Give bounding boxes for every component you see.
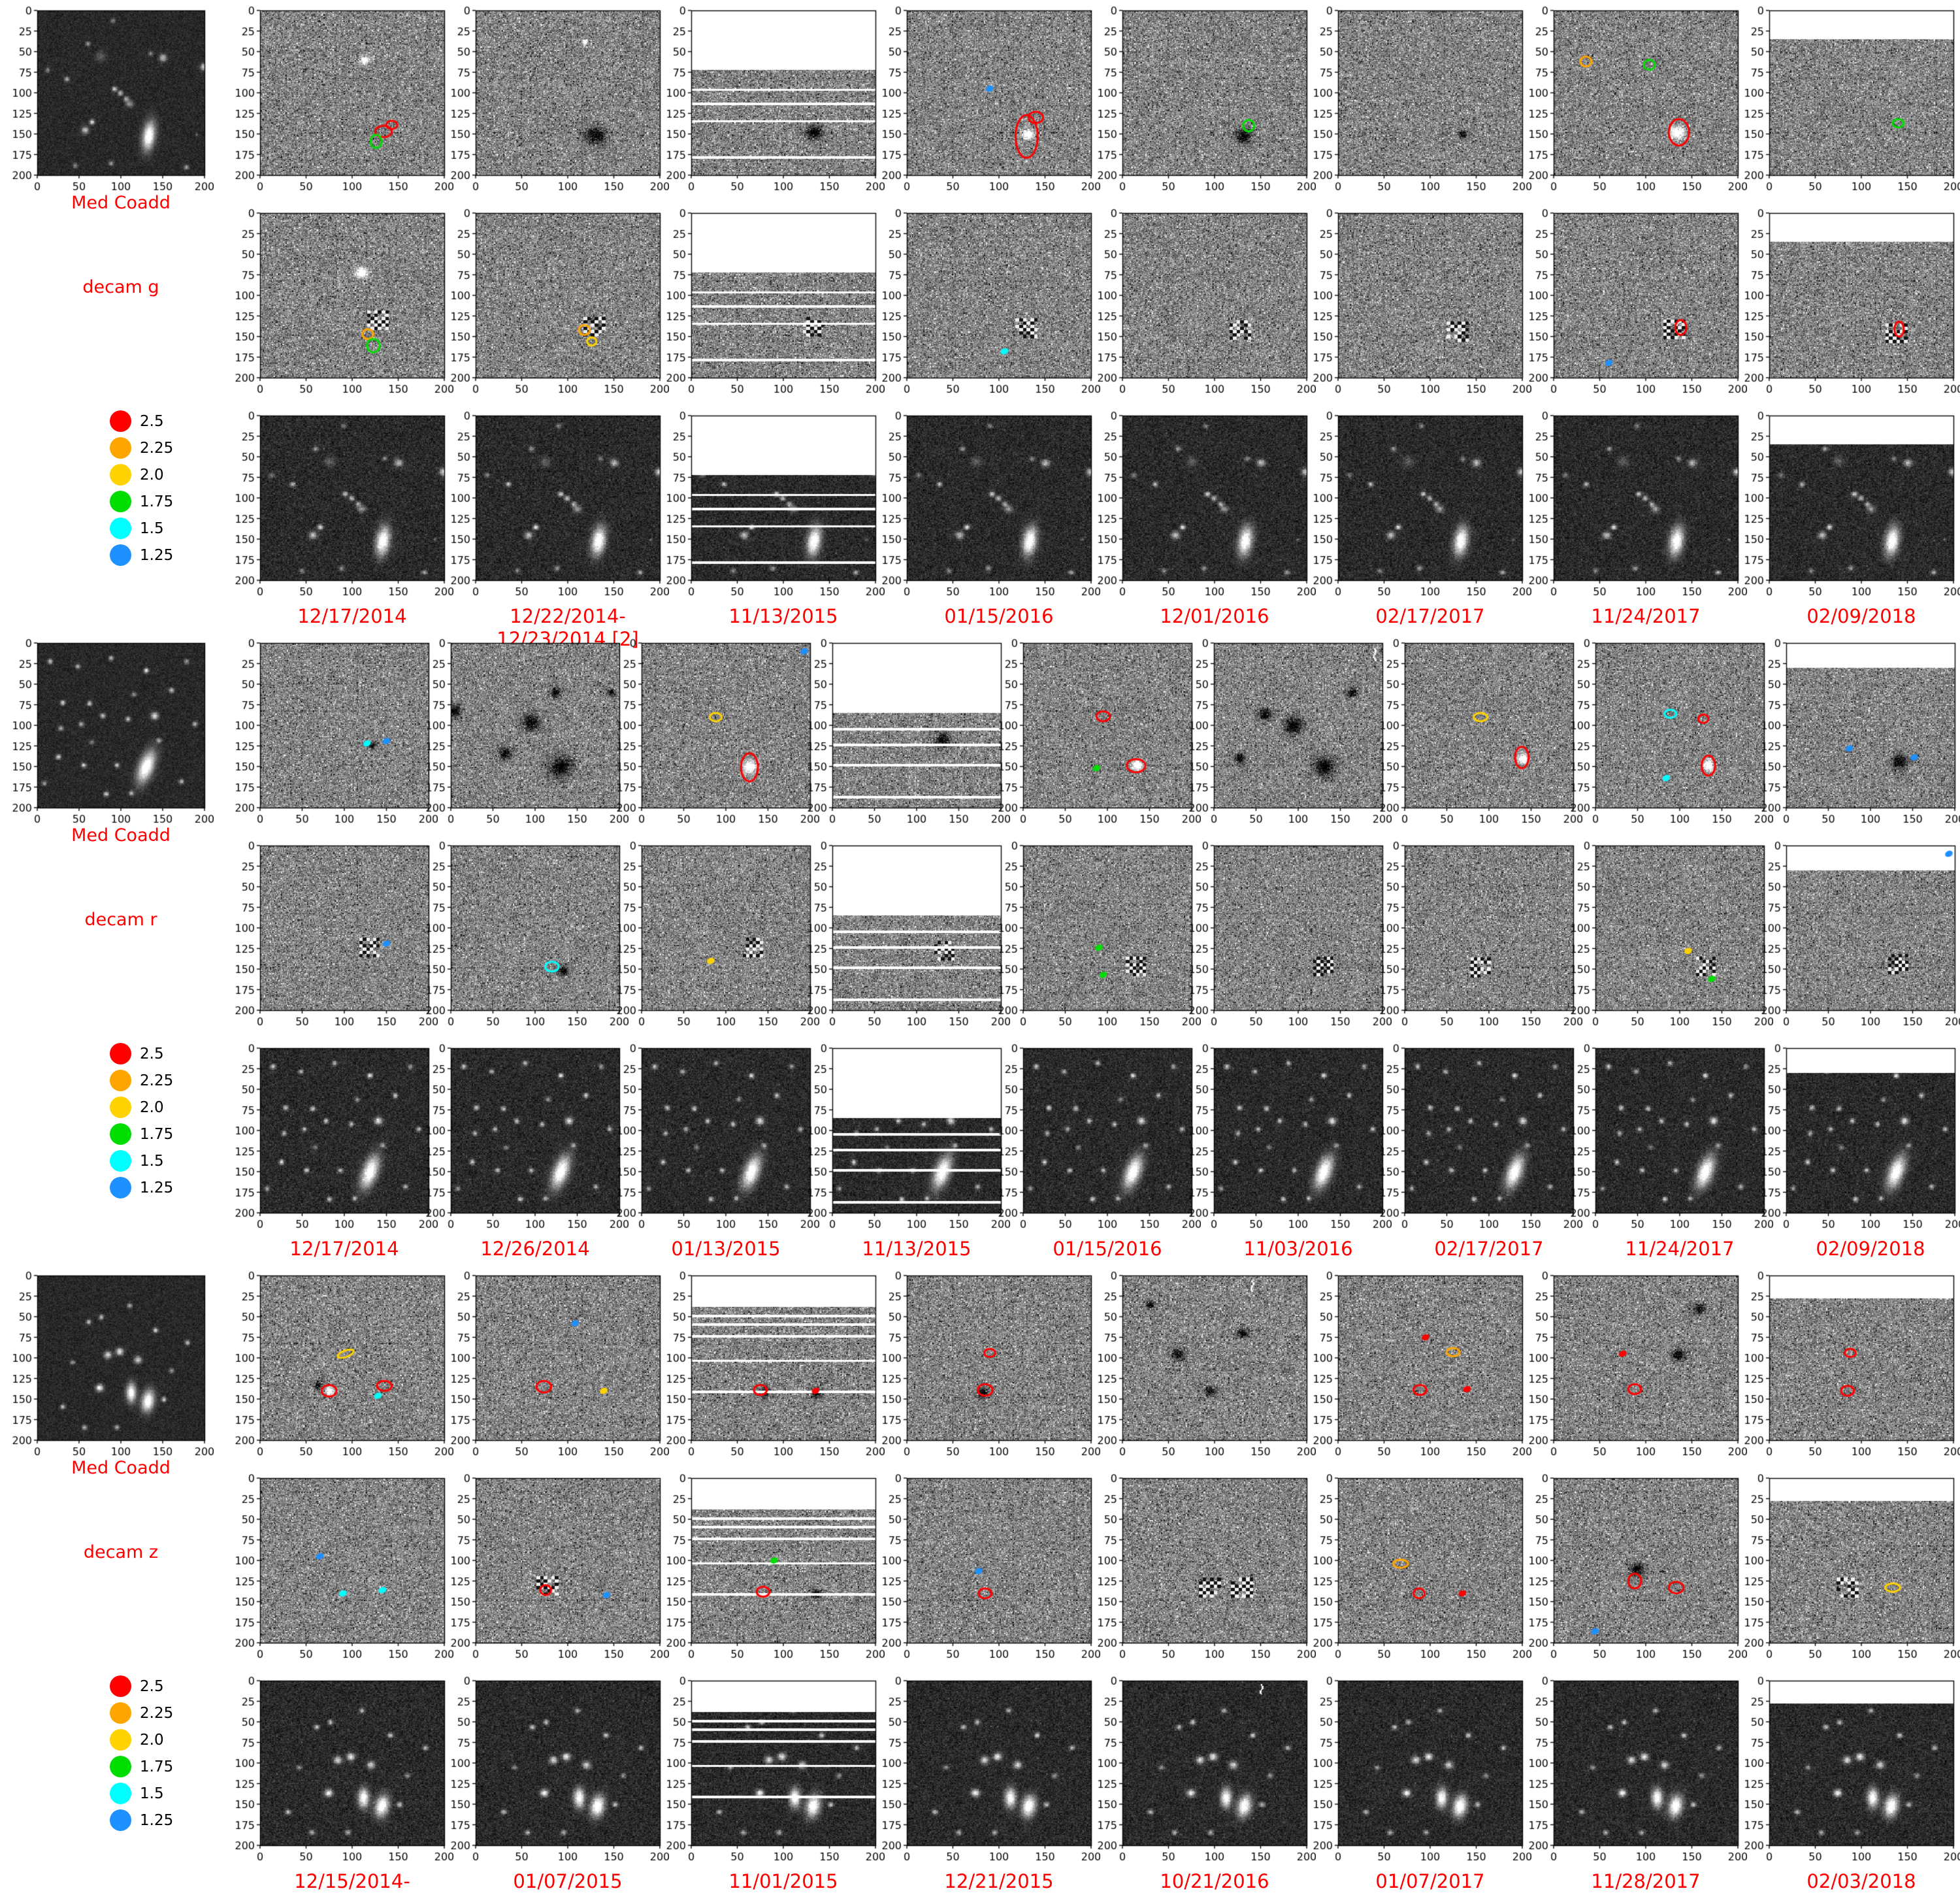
legend-value: 1.25 [140, 1812, 173, 1829]
panel-decam-g-row3-col1 [234, 408, 453, 600]
legend-entry: 1.5 [110, 515, 173, 542]
band-group-decam-r: Med Coadd decam r 2.52.252.01.751.51.25 … [0, 633, 1960, 1265]
panel-decam-z-row1-col8 [1743, 1268, 1960, 1460]
legend-dot-icon [110, 1702, 131, 1724]
band-group-decam-z: Med Coadd decam z 2.52.252.01.751.51.25 … [0, 1265, 1960, 1895]
panel-decam-g-row1-col7 [1527, 3, 1747, 195]
band-label-r: decam r [13, 910, 229, 930]
legend-dot-icon [110, 464, 131, 486]
panel-decam-g-row1-col1 [234, 3, 453, 195]
figure-root: Med Coadd decam g 2.52.252.01.751.51.25 … [0, 0, 1960, 1895]
panel-decam-r-row1-col4 [806, 635, 1010, 827]
panel-decam-g-row3-col4 [881, 408, 1100, 600]
med-coadd-panel-r [11, 635, 214, 827]
legend-dot-icon [110, 1783, 131, 1804]
panel-decam-g-row3-col6 [1312, 408, 1531, 600]
panel-decam-r-row2-col9 [1760, 838, 1960, 1030]
legend-dot-icon [110, 1756, 131, 1777]
panel-decam-r-row1-col3 [615, 635, 819, 827]
legend-value: 1.75 [140, 1126, 173, 1143]
panel-decam-g-row3-col5 [1096, 408, 1316, 600]
legend-value: 2.0 [140, 467, 164, 484]
panel-decam-z-row1-col7 [1527, 1268, 1747, 1460]
panel-decam-z-row3-col3 [665, 1673, 885, 1865]
panel-decam-z-row2-col1 [234, 1470, 453, 1662]
legend-value: 1.75 [140, 1758, 173, 1775]
panel-decam-r-row2-col8 [1569, 838, 1773, 1030]
legend-entry: 1.75 [110, 1121, 173, 1147]
panel-decam-g-row3-col8 [1743, 408, 1960, 600]
panel-decam-g-row2-col2 [449, 205, 669, 397]
panel-decam-z-row2-col6 [1312, 1470, 1531, 1662]
legend-dot-icon [110, 1729, 131, 1751]
legend-value: 1.25 [140, 1179, 173, 1196]
legend-dot-icon [110, 1809, 131, 1831]
legend-dot-icon [110, 410, 131, 432]
confidence-legend: 2.52.252.01.751.51.25 [110, 1673, 173, 1834]
epoch-date-label: 02/09/2018 [1724, 605, 1960, 628]
legend-entry: 2.0 [110, 1094, 173, 1121]
legend-entry: 2.25 [110, 435, 173, 461]
panel-decam-g-row2-col5 [1096, 205, 1316, 397]
panel-decam-z-row2-col5 [1096, 1470, 1316, 1662]
panel-decam-r-row3-col5 [997, 1040, 1201, 1232]
panel-decam-z-row1-col3 [665, 1268, 885, 1460]
legend-dot-icon [110, 1123, 131, 1145]
panel-decam-z-row2-col8 [1743, 1470, 1960, 1662]
med-coadd-label: Med Coadd [24, 193, 218, 213]
legend-value: 1.5 [140, 1785, 164, 1802]
panel-decam-r-row1-col5 [997, 635, 1201, 827]
legend-entry: 2.0 [110, 461, 173, 488]
legend-entry: 1.25 [110, 1174, 173, 1201]
panel-decam-z-row2-col3 [665, 1470, 885, 1662]
panel-decam-g-row1-col8 [1743, 3, 1960, 195]
legend-entry: 2.5 [110, 1040, 173, 1067]
band-label-z: decam z [13, 1542, 229, 1562]
panel-decam-z-row2-col4 [881, 1470, 1100, 1662]
panel-decam-z-row1-col2 [449, 1268, 669, 1460]
panel-decam-r-row3-col6 [1188, 1040, 1392, 1232]
panel-decam-z-row3-col5 [1096, 1673, 1316, 1865]
confidence-legend: 2.52.252.01.751.51.25 [110, 408, 173, 568]
panel-decam-r-row3-col2 [425, 1040, 629, 1232]
legend-entry: 1.25 [110, 1807, 173, 1834]
panel-decam-r-row1-col9 [1760, 635, 1960, 827]
band-group-decam-g: Med Coadd decam g 2.52.252.01.751.51.25 … [0, 0, 1960, 633]
panel-decam-g-row2-col7 [1527, 205, 1747, 397]
legend-dot-icon [110, 544, 131, 566]
panel-decam-g-row1-col4 [881, 3, 1100, 195]
panel-decam-g-row1-col6 [1312, 3, 1531, 195]
panel-decam-r-row2-col1 [234, 838, 438, 1030]
legend-value: 2.5 [140, 1678, 164, 1695]
panel-decam-r-row3-col1 [234, 1040, 438, 1232]
panel-decam-r-row2-col7 [1379, 838, 1582, 1030]
panel-decam-r-row3-col8 [1569, 1040, 1773, 1232]
legend-value: 1.5 [140, 520, 164, 537]
legend-entry: 2.25 [110, 1700, 173, 1726]
legend-entry: 2.5 [110, 408, 173, 435]
panel-decam-z-row1-col6 [1312, 1268, 1531, 1460]
legend-dot-icon [110, 1675, 131, 1697]
legend-value: 1.25 [140, 547, 173, 564]
panel-decam-r-row3-col3 [615, 1040, 819, 1232]
legend-entry: 2.25 [110, 1067, 173, 1094]
panel-decam-g-row2-col8 [1743, 205, 1960, 397]
epoch-date-label: 02/09/2018 [1733, 1238, 1960, 1261]
panel-decam-r-row2-col5 [997, 838, 1201, 1030]
panel-decam-z-row3-col8 [1743, 1673, 1960, 1865]
panel-decam-r-row1-col6 [1188, 635, 1392, 827]
legend-entry: 1.5 [110, 1147, 173, 1174]
med-coadd-panel-g [11, 3, 214, 195]
legend-entry: 2.5 [110, 1673, 173, 1700]
panel-decam-g-row1-col3 [665, 3, 885, 195]
legend-dot-icon [110, 1096, 131, 1118]
legend-value: 2.0 [140, 1732, 164, 1749]
panel-decam-r-row2-col3 [615, 838, 819, 1030]
panel-decam-g-row2-col6 [1312, 205, 1531, 397]
legend-dot-icon [110, 437, 131, 459]
med-coadd-label: Med Coadd [24, 1458, 218, 1478]
panel-decam-z-row3-col4 [881, 1673, 1100, 1865]
panel-decam-r-row1-col1 [234, 635, 438, 827]
legend-value: 2.5 [140, 1046, 164, 1063]
panel-decam-r-row2-col2 [425, 838, 629, 1030]
panel-decam-g-row1-col2 [449, 3, 669, 195]
legend-dot-icon [110, 1150, 131, 1172]
legend-dot-icon [110, 518, 131, 539]
legend-value: 1.5 [140, 1153, 164, 1170]
legend-value: 2.5 [140, 413, 164, 430]
panel-decam-g-row3-col2 [449, 408, 669, 600]
panel-decam-r-row3-col4 [806, 1040, 1010, 1232]
legend-dot-icon [110, 1177, 131, 1198]
epoch-date-label: 02/03/2018 [1724, 1870, 1960, 1893]
panel-decam-r-row2-col6 [1188, 838, 1392, 1030]
legend-entry: 1.75 [110, 488, 173, 515]
confidence-legend: 2.52.252.01.751.51.25 [110, 1040, 173, 1201]
legend-dot-icon [110, 491, 131, 512]
panel-decam-z-row3-col7 [1527, 1673, 1747, 1865]
panel-decam-g-row2-col1 [234, 205, 453, 397]
legend-value: 2.25 [140, 1072, 173, 1089]
legend-dot-icon [110, 1043, 131, 1064]
panel-decam-g-row3-col3 [665, 408, 885, 600]
panel-decam-r-row3-col7 [1379, 1040, 1582, 1232]
legend-entry: 1.25 [110, 542, 173, 568]
legend-value: 1.75 [140, 493, 173, 510]
panel-decam-z-row1-col5 [1096, 1268, 1316, 1460]
panel-decam-r-row1-col8 [1569, 635, 1773, 827]
panel-decam-z-row2-col2 [449, 1470, 669, 1662]
legend-value: 2.25 [140, 440, 173, 457]
panel-decam-z-row3-col2 [449, 1673, 669, 1865]
panel-decam-z-row3-col6 [1312, 1673, 1531, 1865]
legend-entry: 2.0 [110, 1726, 173, 1753]
panel-decam-g-row3-col7 [1527, 408, 1747, 600]
med-coadd-label: Med Coadd [24, 826, 218, 846]
legend-entry: 1.5 [110, 1780, 173, 1807]
med-coadd-panel-z [11, 1268, 214, 1460]
panel-decam-z-row1-col4 [881, 1268, 1100, 1460]
panel-decam-g-row1-col5 [1096, 3, 1316, 195]
panel-decam-g-row2-col4 [881, 205, 1100, 397]
panel-decam-z-row1-col1 [234, 1268, 453, 1460]
legend-value: 2.25 [140, 1705, 173, 1722]
panel-decam-r-row3-col9 [1760, 1040, 1960, 1232]
panel-decam-z-row3-col1 [234, 1673, 453, 1865]
legend-entry: 1.75 [110, 1753, 173, 1780]
panel-decam-z-row2-col7 [1527, 1470, 1747, 1662]
panel-decam-r-row1-col2 [425, 635, 629, 827]
panel-decam-r-row1-col7 [1379, 635, 1582, 827]
legend-dot-icon [110, 1070, 131, 1091]
legend-value: 2.0 [140, 1099, 164, 1116]
panel-decam-g-row2-col3 [665, 205, 885, 397]
panel-decam-r-row2-col4 [806, 838, 1010, 1030]
band-label-g: decam g [13, 277, 229, 297]
